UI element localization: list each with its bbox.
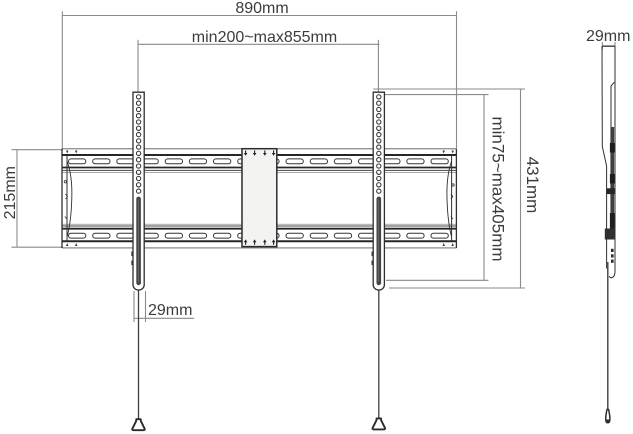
svg-text:890mm: 890mm [235,0,288,17]
svg-text:min75~max405mm: min75~max405mm [489,116,508,261]
svg-text:431mm: 431mm [523,157,542,214]
svg-text:29mm: 29mm [586,28,630,45]
svg-text:215mm: 215mm [2,166,19,219]
svg-text:min200~max855mm: min200~max855mm [192,29,337,46]
svg-text:29mm: 29mm [148,302,192,319]
